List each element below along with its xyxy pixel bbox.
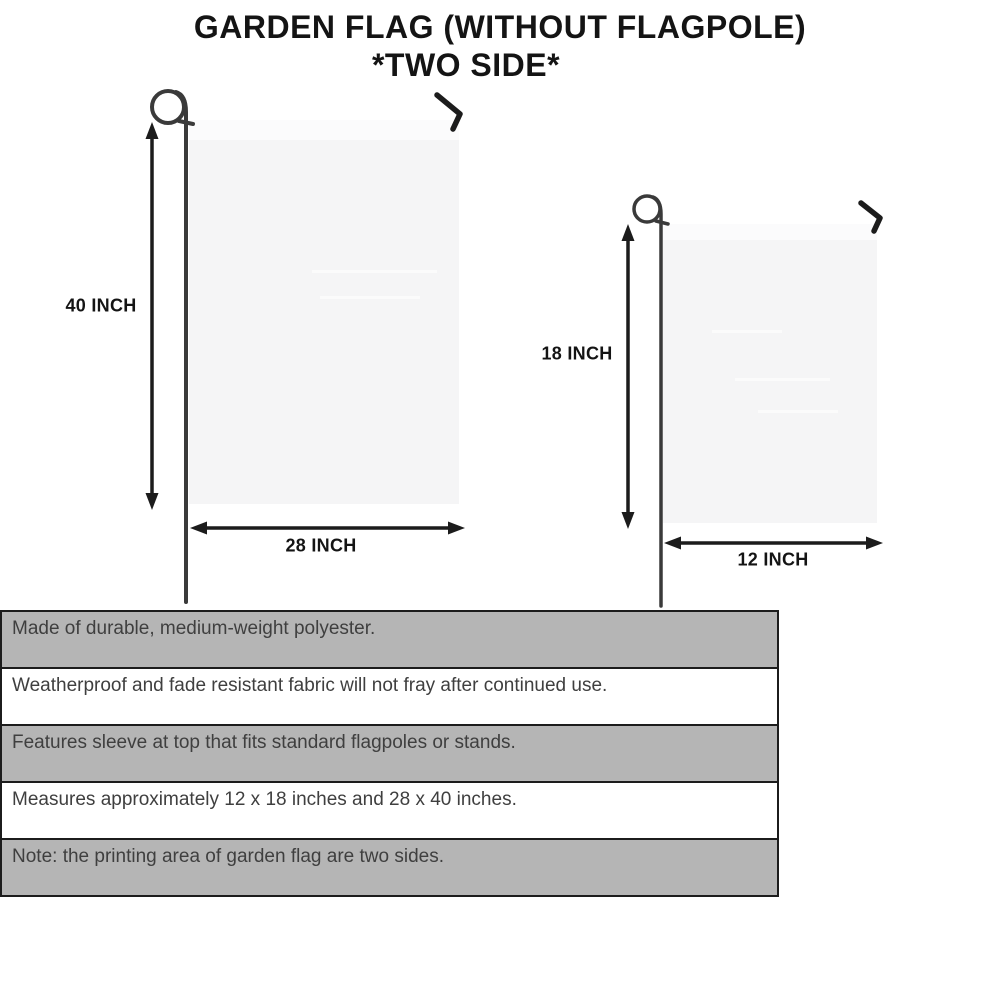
feature-row-1: Made of durable, medium-weight polyester… [2, 612, 777, 667]
feature-table: Made of durable, medium-weight polyester… [0, 610, 779, 897]
feature-row-4: Measures approximately 12 x 18 inches an… [2, 781, 777, 838]
garden-flag-infographic: GARDEN FLAG (WITHOUT FLAGPOLE) *TWO SIDE… [0, 0, 1000, 1000]
small-flag-pole-icon [634, 196, 668, 606]
large-flag-sleeve [189, 120, 459, 140]
feature-text: Made of durable, medium-weight polyester… [12, 618, 375, 640]
small-flag-crease [712, 330, 782, 333]
small-flag [663, 224, 877, 523]
feature-text: Weatherproof and fade resistant fabric w… [12, 675, 607, 697]
small-flag-sleeve [663, 224, 877, 240]
small-flag-height-label: 18 INCH [541, 344, 612, 365]
large-flag-crease [312, 270, 437, 273]
small-flag-width-label: 12 INCH [737, 550, 808, 571]
large-flag-height-arrow [146, 122, 159, 510]
feature-row-3: Features sleeve at top that fits standar… [2, 724, 777, 781]
small-flag-group [622, 196, 884, 606]
large-flag-pole-icon [152, 91, 193, 602]
large-flag-height-label: 40 INCH [65, 296, 136, 317]
small-flag-width-arrow [664, 537, 883, 550]
feature-text: Note: the printing area of garden flag a… [12, 846, 444, 868]
feature-text: Measures approximately 12 x 18 inches an… [12, 789, 517, 811]
large-flag-group [146, 91, 466, 602]
large-flag [189, 120, 459, 504]
large-flag-crease [320, 296, 420, 299]
small-flag-crease [758, 410, 838, 413]
large-flag-width-arrow [190, 522, 465, 535]
small-flag-crease [735, 378, 830, 381]
feature-row-2: Weatherproof and fade resistant fabric w… [2, 667, 777, 724]
large-flag-width-label: 28 INCH [285, 536, 356, 557]
feature-text: Features sleeve at top that fits standar… [12, 732, 516, 754]
small-flag-height-arrow [622, 224, 635, 529]
feature-row-5: Note: the printing area of garden flag a… [2, 838, 777, 895]
